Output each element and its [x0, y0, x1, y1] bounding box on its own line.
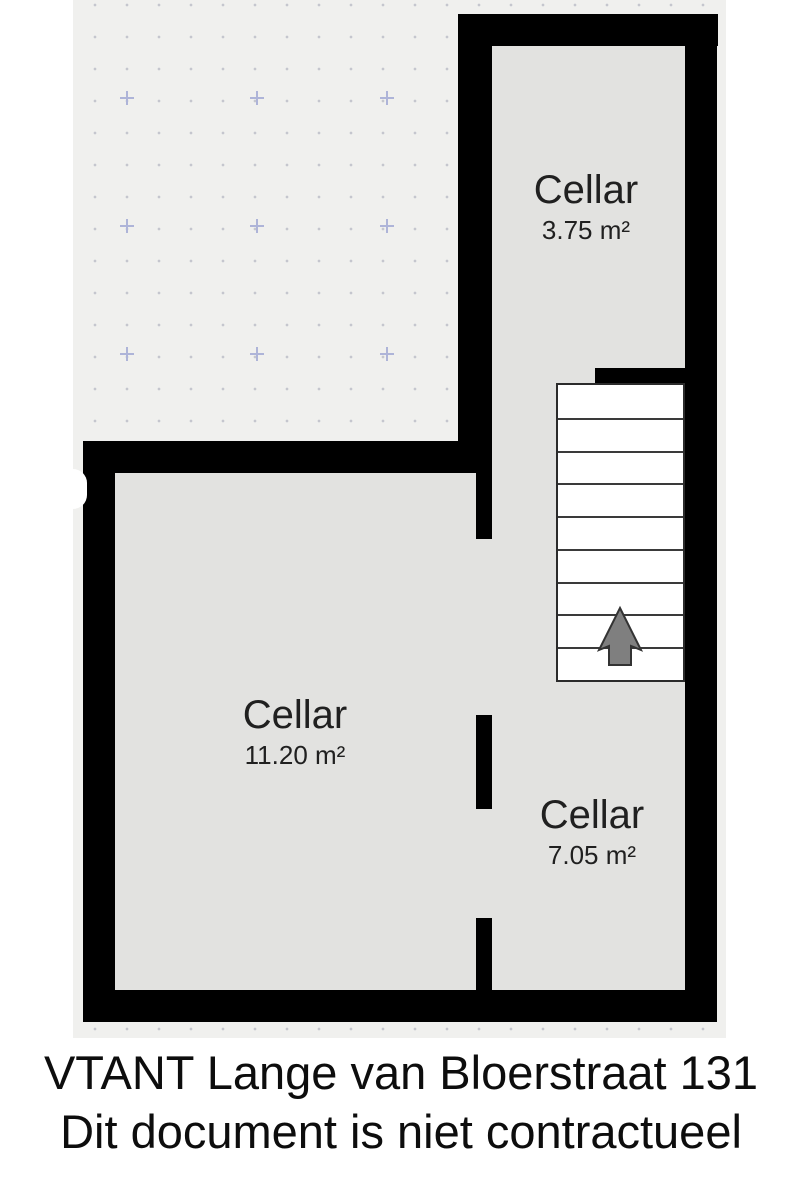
stair-tread-line [558, 418, 683, 420]
stair-tread-line [558, 516, 683, 518]
wall-partition-stub-1 [476, 473, 492, 539]
stair-tread-line [558, 483, 683, 485]
stair-tread-line [558, 549, 683, 551]
wall-right [685, 14, 717, 1022]
room-area: 3.75 m² [534, 216, 638, 244]
grid-cross-icon [380, 219, 394, 233]
room-name: Cellar [540, 795, 644, 835]
wall-partition-stub-3 [476, 918, 492, 990]
wall-left [83, 441, 115, 1022]
footer-disclaimer: VTANT Lange van Bloerstraat 131 Dit docu… [0, 1043, 802, 1161]
footer-line-2: Dit document is niet contractueel [0, 1102, 802, 1161]
room-name: Cellar [243, 695, 347, 735]
grid-cross-icon [380, 347, 394, 361]
room-name: Cellar [534, 170, 638, 210]
room-area: 7.05 m² [540, 841, 644, 869]
stair-tread-line [558, 451, 683, 453]
room-label-cellar-left: Cellar 11.20 m² [243, 695, 347, 769]
stair-tread-line [558, 582, 683, 584]
wall-bottom [83, 990, 717, 1022]
footer-line-1: VTANT Lange van Bloerstraat 131 [0, 1043, 802, 1102]
wall-top [458, 14, 718, 46]
floorplan-canvas: Cellar 3.75 m² Cellar 11.20 m² Cellar 7.… [73, 0, 726, 1038]
room-area: 11.20 m² [243, 741, 347, 769]
wall-middle-horizontal [83, 441, 492, 473]
grid-cross-icon [380, 91, 394, 105]
stairs-up-arrow-icon [583, 600, 663, 670]
room-label-cellar-right: Cellar 7.05 m² [540, 795, 644, 869]
wall-cellar-top-left [458, 14, 492, 473]
door-notch [58, 469, 87, 509]
room-label-cellar-top: Cellar 3.75 m² [534, 170, 638, 244]
grid-cross-icon [120, 219, 134, 233]
grid-cross-icon [120, 347, 134, 361]
grid-cross-icon [120, 91, 134, 105]
grid-cross-icon [250, 219, 264, 233]
wall-partition-stub-2 [476, 715, 492, 809]
grid-cross-icon [250, 91, 264, 105]
wall-stair-stub [595, 368, 685, 383]
grid-cross-icon [250, 347, 264, 361]
